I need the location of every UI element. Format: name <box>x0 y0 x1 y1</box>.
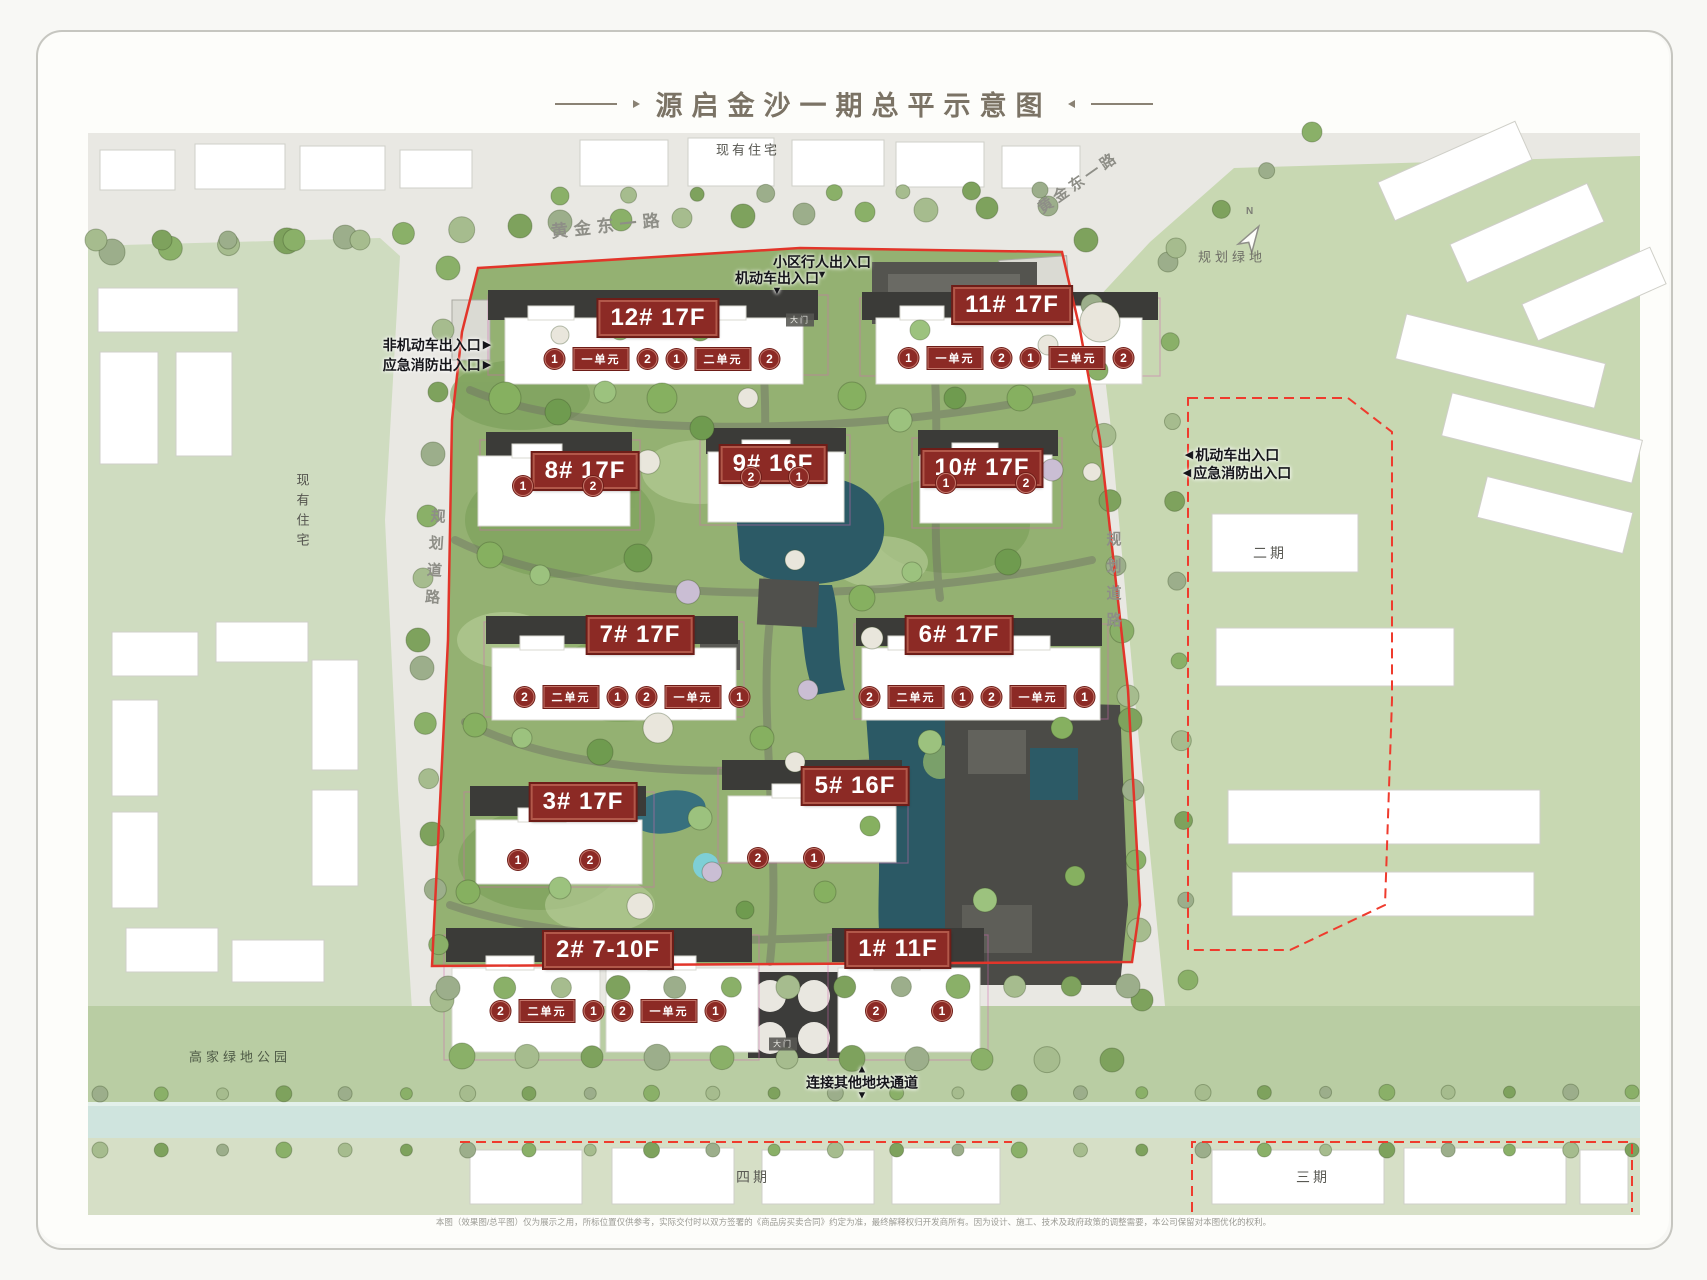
gate-label-north: 大门 <box>786 314 814 327</box>
unit-label: 一单元 <box>574 348 629 370</box>
building-2-units: 2 二单元 1 2 一单元 1 <box>491 1000 726 1022</box>
unit-circle: 1 <box>730 687 750 707</box>
page-title: 源启金沙一期总平示意图 <box>656 84 1052 123</box>
unit-circle: 1 <box>932 1001 952 1021</box>
building-1-badge: 1# 11F <box>846 931 949 967</box>
unit-label: 二单元 <box>696 348 751 370</box>
building-7-badge: 7# 17F <box>588 617 693 653</box>
unit-label: 一单元 <box>666 686 721 708</box>
entrance-connect-bottom: ▲ 连接其他地块通道 ▼ <box>806 1065 918 1102</box>
title-deco-arrow-right <box>1068 100 1075 108</box>
unit-circle: 2 <box>515 687 535 707</box>
label-phase-4: 四期 <box>736 1167 770 1187</box>
entrance-non-motor-left: 非机动车出入口 ▶ <box>383 335 491 355</box>
unit-circle: 2 <box>613 1001 633 1021</box>
entrance-fire-left: 应急消防出入口 ▶ <box>383 355 491 375</box>
unit-circle: 1 <box>545 349 565 369</box>
building-5-badge: 5# 16F <box>803 768 908 804</box>
unit-circle: 2 <box>1114 348 1134 368</box>
unit-circle: 2 <box>860 687 880 707</box>
label-existing-residential-left: 现有住宅 <box>293 473 312 553</box>
unit-circle: 1 <box>789 467 809 487</box>
arrow-down-icon: ▼ <box>857 1090 868 1101</box>
unit-label: 二单元 <box>1050 347 1105 369</box>
unit-circle: 1 <box>706 1001 726 1021</box>
building-6-badge: 6# 17F <box>907 617 1012 653</box>
unit-circle: 2 <box>491 1001 511 1021</box>
unit-circle: 1 <box>1021 348 1041 368</box>
disclaimer-text: 本图（效果图/总平图）仅为展示之用，所标位置仅供参考，实际交付时以双方签署的《商… <box>436 1216 1271 1228</box>
building-3-units: 1 2 <box>508 850 600 870</box>
unit-circle: 2 <box>580 850 600 870</box>
title-deco-line-left <box>555 103 617 105</box>
unit-label: 二单元 <box>520 1000 575 1022</box>
building-12-units: 1 一单元 2 1 二单元 2 <box>545 348 780 370</box>
unit-circle: 2 <box>637 687 657 707</box>
building-3-badge: 3# 17F <box>531 784 636 820</box>
building-10-units: 1 2 <box>936 473 1036 493</box>
unit-label: 一单元 <box>1011 686 1066 708</box>
arrow-right-icon: ▶ <box>483 360 491 371</box>
unit-label: 二单元 <box>544 686 599 708</box>
unit-circle: 2 <box>982 687 1002 707</box>
label-planned-road-right: 规划道路 <box>1103 531 1124 639</box>
building-2-badge: 2# 7-10F <box>544 932 672 968</box>
unit-circle: 1 <box>584 1001 604 1021</box>
unit-circle: 1 <box>667 349 687 369</box>
arrow-left-icon: ◀ <box>1183 468 1191 479</box>
unit-label: 一单元 <box>642 1000 697 1022</box>
arrow-down-icon: ▼ <box>772 286 783 297</box>
gate-label-south: 大门 <box>769 1038 797 1051</box>
title-deco-line-right <box>1091 103 1153 105</box>
building-6-units: 2 二单元 1 2 一单元 1 <box>860 686 1095 708</box>
building-9-units: 2 1 <box>741 467 809 487</box>
unit-circle: 2 <box>583 476 603 496</box>
building-11-badge: 11# 17F <box>953 287 1071 323</box>
compass-label: N <box>1246 206 1253 217</box>
unit-circle: 1 <box>608 687 628 707</box>
unit-label: 一单元 <box>928 347 983 369</box>
entrance-vehicle-right: ◀ 机动车出入口 <box>1185 445 1279 465</box>
building-5-units: 2 1 <box>748 848 824 868</box>
unit-circle: 1 <box>508 850 528 870</box>
label-gaojia-park: 高家绿地公园 <box>189 1047 291 1066</box>
arrow-left-icon: ◀ <box>1185 450 1193 461</box>
building-8-units: 1 2 <box>513 476 603 496</box>
unit-circle: 2 <box>741 467 761 487</box>
unit-circle: 1 <box>804 848 824 868</box>
unit-circle: 1 <box>899 348 919 368</box>
arrow-right-icon: ▶ <box>483 340 491 351</box>
unit-circle: 2 <box>1016 473 1036 493</box>
unit-circle: 2 <box>866 1001 886 1021</box>
building-11-units: 1 一单元 2 1 二单元 2 <box>899 347 1134 369</box>
unit-circle: 2 <box>760 349 780 369</box>
unit-circle: 2 <box>638 349 658 369</box>
unit-circle: 1 <box>953 687 973 707</box>
label-phase-3: 三期 <box>1296 1167 1330 1187</box>
building-12-badge: 12# 17F <box>598 300 717 336</box>
unit-circle: 1 <box>513 476 533 496</box>
unit-label: 二单元 <box>889 686 944 708</box>
page-title-row: 源启金沙一期总平示意图 <box>555 84 1153 123</box>
entrance-fire-right: ◀ 应急消防出入口 <box>1183 463 1291 483</box>
unit-circle: 2 <box>748 848 768 868</box>
building-1-units: 2 1 <box>866 1001 952 1021</box>
building-7-units: 2 二单元 1 2 一单元 1 <box>515 686 750 708</box>
title-deco-arrow-left <box>633 100 640 108</box>
label-planned-green: 规划绿地 <box>1198 247 1266 266</box>
unit-circle: 2 <box>992 348 1012 368</box>
site-plan-page: 源启金沙一期总平示意图 N 现有住宅 黄金东一路 黄金东一路 规划绿地 现有住宅… <box>0 0 1707 1280</box>
unit-circle: 1 <box>936 473 956 493</box>
unit-circle: 1 <box>1075 687 1095 707</box>
label-existing-residential-top: 现有住宅 <box>716 140 780 159</box>
label-phase-2: 二期 <box>1253 543 1287 563</box>
entrance-vehicle-top: 机动车出入口 ▼ <box>735 271 819 297</box>
